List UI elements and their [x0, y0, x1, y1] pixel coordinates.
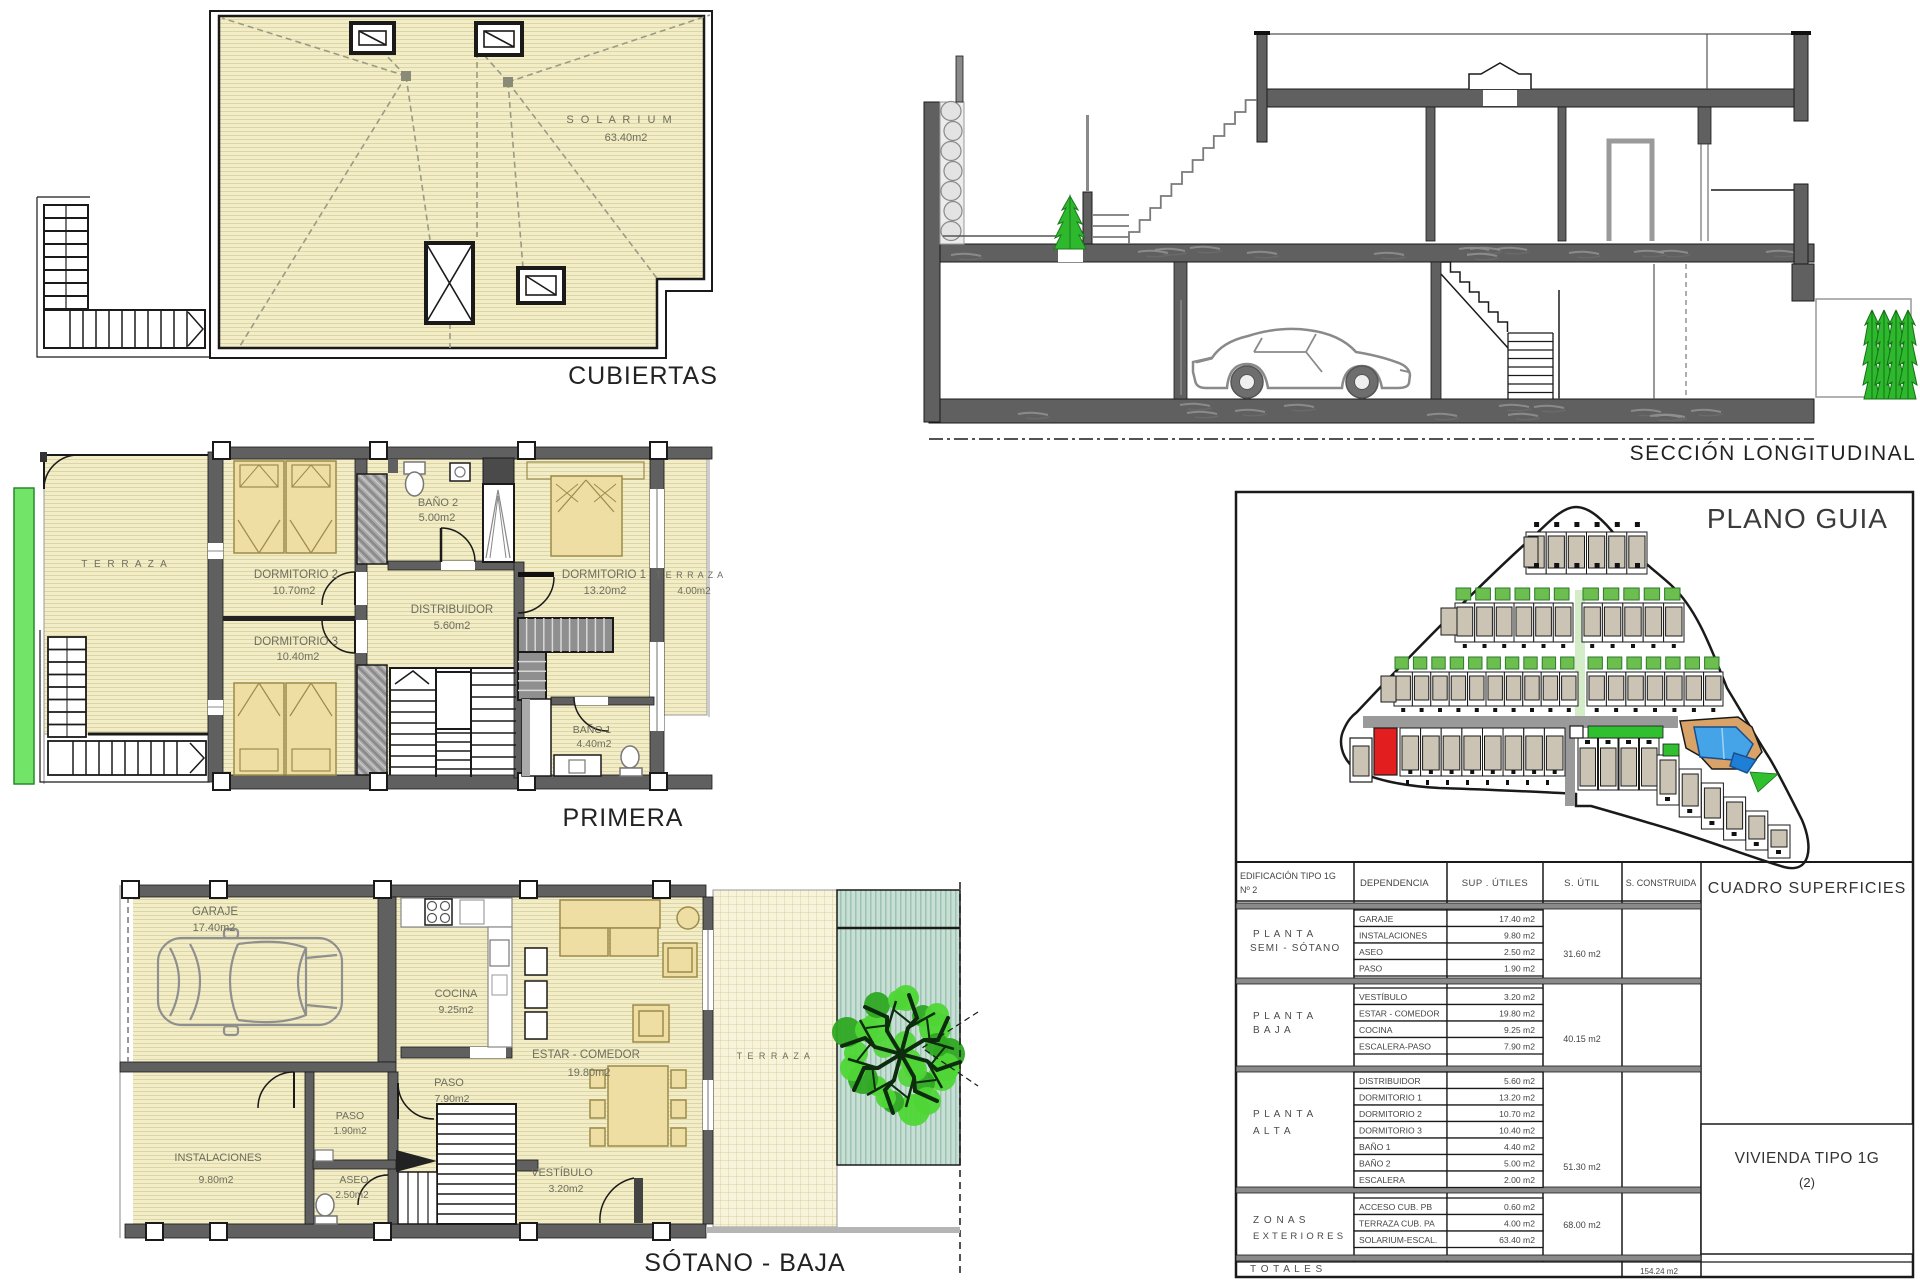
- svg-text:63.40m2: 63.40m2: [605, 132, 648, 144]
- svg-text:10.70m2: 10.70m2: [273, 585, 316, 597]
- svg-text:63.40 m2: 63.40 m2: [1499, 1235, 1535, 1245]
- svg-text:0.60 m2: 0.60 m2: [1504, 1202, 1535, 1212]
- svg-text:DORMITORIO 3: DORMITORIO 3: [1359, 1126, 1422, 1136]
- svg-text:CUBIERTAS: CUBIERTAS: [568, 362, 718, 390]
- svg-text:10.40 m2: 10.40 m2: [1499, 1126, 1535, 1136]
- svg-text:9.80 m2: 9.80 m2: [1504, 931, 1535, 941]
- svg-text:68.00 m2: 68.00 m2: [1563, 1220, 1601, 1230]
- svg-text:5.00 m2: 5.00 m2: [1504, 1159, 1535, 1169]
- svg-text:S. ÚTIL: S. ÚTIL: [1564, 878, 1600, 889]
- svg-text:10.40m2: 10.40m2: [277, 651, 320, 663]
- svg-text:B A J A: B A J A: [1253, 1025, 1292, 1036]
- svg-text:PLANO GUIA: PLANO GUIA: [1707, 503, 1888, 534]
- svg-text:CUADRO SUPERFICIES: CUADRO SUPERFICIES: [1708, 880, 1906, 897]
- svg-text:BAÑO 1: BAÑO 1: [573, 723, 612, 736]
- svg-text:154.24 m2: 154.24 m2: [1640, 1267, 1678, 1276]
- svg-text:7.90m2: 7.90m2: [434, 1093, 469, 1105]
- svg-text:17.40 m2: 17.40 m2: [1499, 914, 1535, 924]
- svg-text:19.80 m2: 19.80 m2: [1499, 1009, 1535, 1019]
- svg-text:DISTRIBUIDOR: DISTRIBUIDOR: [1359, 1076, 1421, 1086]
- svg-text:P L A N T A: P L A N T A: [1253, 1011, 1314, 1022]
- svg-text:2.50 m2: 2.50 m2: [1504, 947, 1535, 957]
- svg-text:SOLARIUM-ESCAL.: SOLARIUM-ESCAL.: [1359, 1235, 1437, 1245]
- svg-text:INSTALACIONES: INSTALACIONES: [1359, 931, 1427, 941]
- svg-text:T E R R A Z A: T E R R A Z A: [656, 570, 724, 580]
- svg-text:SECCIÓN LONGITUDINAL: SECCIÓN LONGITUDINAL: [1630, 442, 1917, 465]
- svg-text:1.90 m2: 1.90 m2: [1504, 964, 1535, 974]
- svg-text:T O T A L E S: T O T A L E S: [1250, 1264, 1323, 1275]
- svg-text:ESTAR - COMEDOR: ESTAR - COMEDOR: [1359, 1009, 1440, 1019]
- svg-text:P L A N T A: P L A N T A: [1253, 929, 1314, 940]
- svg-text:9.25m2: 9.25m2: [438, 1004, 473, 1016]
- svg-text:E X T E R I O R E S: E X T E R I O R E S: [1253, 1231, 1343, 1242]
- svg-text:5.00m2: 5.00m2: [419, 512, 456, 524]
- svg-text:COCINA: COCINA: [1359, 1025, 1393, 1035]
- svg-text:BAÑO 2: BAÑO 2: [418, 496, 458, 509]
- svg-text:5.60m2: 5.60m2: [434, 620, 471, 632]
- svg-text:ESCALERA-PASO: ESCALERA-PASO: [1359, 1042, 1431, 1052]
- svg-text:EDIFICACIÓN TIPO 1G: EDIFICACIÓN TIPO 1G: [1240, 871, 1336, 881]
- svg-text:INSTALACIONES: INSTALACIONES: [174, 1152, 261, 1164]
- svg-text:ASEO: ASEO: [1359, 947, 1383, 957]
- svg-text:7.90 m2: 7.90 m2: [1504, 1042, 1535, 1052]
- svg-text:4.00m2: 4.00m2: [677, 586, 711, 597]
- svg-text:DORMITORIO 1: DORMITORIO 1: [1359, 1093, 1422, 1103]
- svg-text:5.60 m2: 5.60 m2: [1504, 1076, 1535, 1086]
- svg-text:31.60 m2: 31.60 m2: [1563, 949, 1601, 959]
- svg-text:A L T A: A L T A: [1253, 1126, 1292, 1137]
- svg-text:Nº 2: Nº 2: [1240, 885, 1257, 895]
- svg-text:ESCALERA: ESCALERA: [1359, 1175, 1405, 1185]
- svg-text:13.20m2: 13.20m2: [584, 585, 627, 597]
- svg-text:ACCESO CUB. PB: ACCESO CUB. PB: [1359, 1202, 1432, 1212]
- svg-text:SUP . ÚTILES: SUP . ÚTILES: [1462, 878, 1529, 889]
- svg-text:TERRAZA CUB. PA: TERRAZA CUB. PA: [1359, 1219, 1435, 1229]
- svg-text:P L A N T A: P L A N T A: [1253, 1109, 1314, 1120]
- svg-text:51.30 m2: 51.30 m2: [1563, 1162, 1601, 1172]
- svg-text:DISTRIBUIDOR: DISTRIBUIDOR: [411, 604, 493, 616]
- svg-text:PASO: PASO: [1359, 964, 1383, 974]
- svg-text:2.00 m2: 2.00 m2: [1504, 1175, 1535, 1185]
- svg-text:ESTAR - COMEDOR: ESTAR - COMEDOR: [532, 1049, 640, 1061]
- svg-text:PASO: PASO: [434, 1077, 464, 1089]
- svg-text:S O L A R I U M: S O L A R I U M: [566, 114, 673, 126]
- svg-text:2.50m2: 2.50m2: [335, 1190, 369, 1201]
- svg-text:4.40m2: 4.40m2: [576, 738, 611, 750]
- svg-text:T E R R A Z A: T E R R A Z A: [81, 559, 169, 570]
- svg-text:PRIMERA: PRIMERA: [563, 804, 684, 832]
- svg-text:DORMITORIO 1: DORMITORIO 1: [562, 569, 646, 581]
- svg-text:T E R R A Z A: T E R R A Z A: [737, 1051, 812, 1061]
- svg-text:DORMITORIO 2: DORMITORIO 2: [1359, 1109, 1422, 1119]
- svg-text:ASEO: ASEO: [339, 1174, 368, 1186]
- svg-text:COCINA: COCINA: [435, 988, 478, 1000]
- svg-text:19.80m2: 19.80m2: [568, 1067, 611, 1079]
- svg-text:4.40 m2: 4.40 m2: [1504, 1142, 1535, 1152]
- svg-text:1.90m2: 1.90m2: [333, 1126, 367, 1137]
- svg-text:Z O N A S: Z O N A S: [1253, 1215, 1306, 1226]
- svg-text:BAÑO 2: BAÑO 2: [1359, 1159, 1391, 1169]
- svg-text:13.20 m2: 13.20 m2: [1499, 1093, 1535, 1103]
- svg-text:SÓTANO - BAJA: SÓTANO - BAJA: [644, 1248, 845, 1277]
- svg-text:9.80m2: 9.80m2: [198, 1174, 233, 1186]
- svg-text:10.70 m2: 10.70 m2: [1499, 1109, 1535, 1119]
- svg-text:VESTÍBULO: VESTÍBULO: [1359, 992, 1408, 1002]
- svg-text:SEMI - SÓTANO: SEMI - SÓTANO: [1250, 941, 1340, 954]
- svg-text:3.20m2: 3.20m2: [548, 1183, 583, 1195]
- svg-text:DORMITORIO 3: DORMITORIO 3: [254, 636, 338, 648]
- svg-text:9.25 m2: 9.25 m2: [1504, 1025, 1535, 1035]
- svg-text:S. CONSTRUIDA: S. CONSTRUIDA: [1626, 878, 1697, 888]
- svg-text:17.40m2: 17.40m2: [193, 922, 236, 934]
- svg-text:40.15 m2: 40.15 m2: [1563, 1034, 1601, 1044]
- svg-text:BAÑO 1: BAÑO 1: [1359, 1142, 1391, 1152]
- svg-text:GARAJE: GARAJE: [1359, 914, 1394, 924]
- svg-text:4.00 m2: 4.00 m2: [1504, 1219, 1535, 1229]
- svg-text:DEPENDENCIA: DEPENDENCIA: [1360, 878, 1429, 889]
- svg-text:PASO: PASO: [336, 1110, 364, 1122]
- svg-text:3.20 m2: 3.20 m2: [1504, 992, 1535, 1002]
- svg-text:VIVIENDA TIPO 1G: VIVIENDA TIPO 1G: [1735, 1150, 1880, 1167]
- svg-text:VESTÍBULO: VESTÍBULO: [531, 1166, 593, 1179]
- svg-text:GARAJE: GARAJE: [192, 906, 238, 918]
- svg-text:(2): (2): [1799, 1175, 1815, 1190]
- svg-text:DORMITORIO 2: DORMITORIO 2: [254, 569, 338, 581]
